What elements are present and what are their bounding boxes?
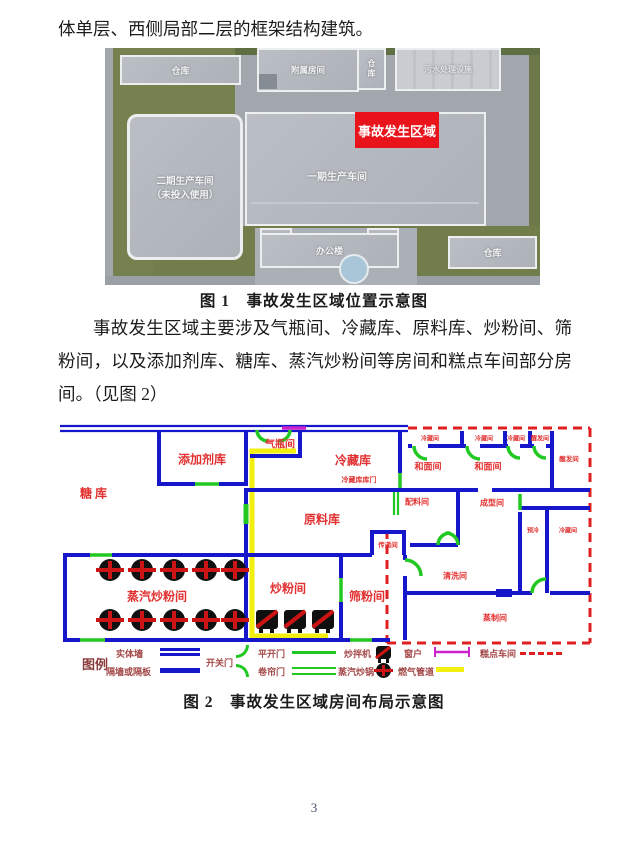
steam-wok-icon xyxy=(99,609,121,631)
room-label-proof-1: 醒发间 xyxy=(531,434,549,443)
room-label-additive: 添加剂库 xyxy=(178,451,226,468)
gas-pipe-swatch xyxy=(436,667,464,672)
body-text-line: 体单层、西侧局部二层的框架结构建筑。 xyxy=(58,14,578,45)
building-label: 一期生产车间 xyxy=(307,168,367,183)
figure2-caption: 图 2 事故发生区域房间布局示意图 xyxy=(0,690,628,712)
room-label-proof-2: 醒发间 xyxy=(559,453,579,463)
room-label-transfer: 传递间 xyxy=(378,539,398,549)
partition-swatch xyxy=(160,668,200,673)
steam-wok-icon xyxy=(224,559,246,581)
legend-steam-wok-label: 蒸汽炒锅 xyxy=(338,665,374,678)
document-page: 体单层、西侧局部二层的框架结构建筑。 仓库 附属房间 仓库 污水处理设施 二期生… xyxy=(0,0,628,845)
room-label-batching: 配料间 xyxy=(405,497,429,508)
swing-door-swatch xyxy=(236,664,249,677)
room-label-forming: 成型间 xyxy=(480,498,504,509)
legend-title: 图例 xyxy=(82,654,108,673)
room-label-cold-1: 冷藏间 xyxy=(421,434,439,443)
steam-wok-icon xyxy=(99,559,121,581)
building-office: 办公楼 xyxy=(260,233,399,268)
building-phase2-workshop: 二期生产车间 （未投入使用） xyxy=(127,114,243,260)
building-label: 办公楼 xyxy=(316,244,343,257)
figure1-site-photo: 仓库 附属房间 仓库 污水处理设施 二期生产车间 （未投入使用） 一期生产车间 … xyxy=(105,48,540,285)
legend-solid-wall-label: 实体墙 xyxy=(116,647,143,660)
figure2-floorplan: 糖库 添加剂库 气瓶间 冷藏库 冷藏库库门 原料库 蒸汽炒粉间 炒粉间 筛粉间 … xyxy=(60,418,605,648)
legend-shutter-door-label: 卷帘门 xyxy=(258,665,285,678)
building-label: （未投入使用） xyxy=(152,187,219,201)
room-label-fry: 炒粉间 xyxy=(270,580,306,597)
steam-wok-icon xyxy=(131,559,153,581)
mixer-icon xyxy=(256,610,278,629)
room-label-cold-4: 冷藏间 xyxy=(559,526,577,535)
hinged-door-swatch xyxy=(292,651,336,654)
room-label-cleaning: 清洗间 xyxy=(443,571,467,582)
building-label: 仓库 xyxy=(483,246,501,259)
building-warehouse-bottom-right: 仓库 xyxy=(448,236,537,269)
mixer-legend-icon xyxy=(376,646,391,659)
cake-workshop-swatch xyxy=(520,652,562,655)
legend-mixer-label: 炒拌机 xyxy=(344,647,371,660)
room-label-cold-2: 冷藏间 xyxy=(475,434,493,443)
figure2-legend: 图例 实体墙 隔墙或隔板 开关门 平开门 卷帘门 炒拌机 蒸汽炒锅 窗户 燃气管… xyxy=(60,644,605,686)
building-label: 污水处理设施 xyxy=(424,64,472,75)
roof-line xyxy=(251,202,479,204)
legend-cake-workshop-label: 糕点车间 xyxy=(480,647,516,660)
legend-hinged-door-label: 平开门 xyxy=(258,647,285,660)
solid-wall-swatch xyxy=(160,648,200,656)
room-label-dough-1: 和面间 xyxy=(414,460,441,473)
room-label-steaming: 蒸制间 xyxy=(483,613,507,624)
figure1-caption: 图 1 事故发生区域位置示意图 xyxy=(0,289,628,311)
window-swatch xyxy=(432,646,472,658)
legend-swing-door-label: 开关门 xyxy=(206,656,233,669)
steam-wok-legend-icon xyxy=(376,663,391,678)
steam-wok-icon xyxy=(195,559,217,581)
building-label: 仓库 xyxy=(171,64,189,77)
legend-partition-label: 隔墙或隔板 xyxy=(106,665,151,678)
mixer-icon xyxy=(312,610,334,629)
steam-wok-icon xyxy=(224,609,246,631)
legend-gas-pipe-label: 燃气管道 xyxy=(398,665,434,678)
room-label-cold-storage-door: 冷藏库库门 xyxy=(342,475,377,485)
room-label-dough-2: 和面间 xyxy=(474,460,501,473)
building-warehouse-small: 仓库 xyxy=(357,48,386,90)
room-label-cylinder: 气瓶间 xyxy=(265,436,295,451)
page-number: 3 xyxy=(0,800,628,816)
building-label: 二期生产车间 xyxy=(156,173,213,187)
building-label: 附属房间 xyxy=(291,64,325,76)
steam-wok-icon xyxy=(195,609,217,631)
shutter-door-swatch xyxy=(292,667,336,675)
body-paragraph: 事故发生区域主要涉及气瓶间、冷藏库、原料库、炒粉间、筛粉间，以及添加剂库、糖库、… xyxy=(58,312,572,411)
building-sewage-treatment: 污水处理设施 xyxy=(395,48,501,91)
building-warehouse-top-left: 仓库 xyxy=(120,55,241,85)
building-annex xyxy=(259,74,277,89)
accident-area-box: 事故发生区域 xyxy=(355,112,439,148)
building-label: 仓库 xyxy=(366,59,377,79)
room-label-raw-material: 原料库 xyxy=(304,511,340,528)
fountain xyxy=(339,254,369,284)
room-label-sieve: 筛粉间 xyxy=(349,588,385,605)
room-label-precool: 预冷 xyxy=(527,526,539,535)
room-label-cold-3: 冷藏间 xyxy=(507,434,525,443)
room-label-sugar: 糖库 xyxy=(80,485,110,502)
steam-wok-icon xyxy=(131,609,153,631)
room-label-steam-fry: 蒸汽炒粉间 xyxy=(127,588,187,605)
steam-wok-icon xyxy=(163,559,185,581)
mixer-icon xyxy=(284,610,306,629)
steam-wok-icon xyxy=(163,609,185,631)
room-label-cold-storage: 冷藏库 xyxy=(335,452,371,469)
legend-window-label: 窗户 xyxy=(404,647,422,660)
swing-door-swatch xyxy=(236,645,249,658)
accident-area-label: 事故发生区域 xyxy=(358,121,436,140)
